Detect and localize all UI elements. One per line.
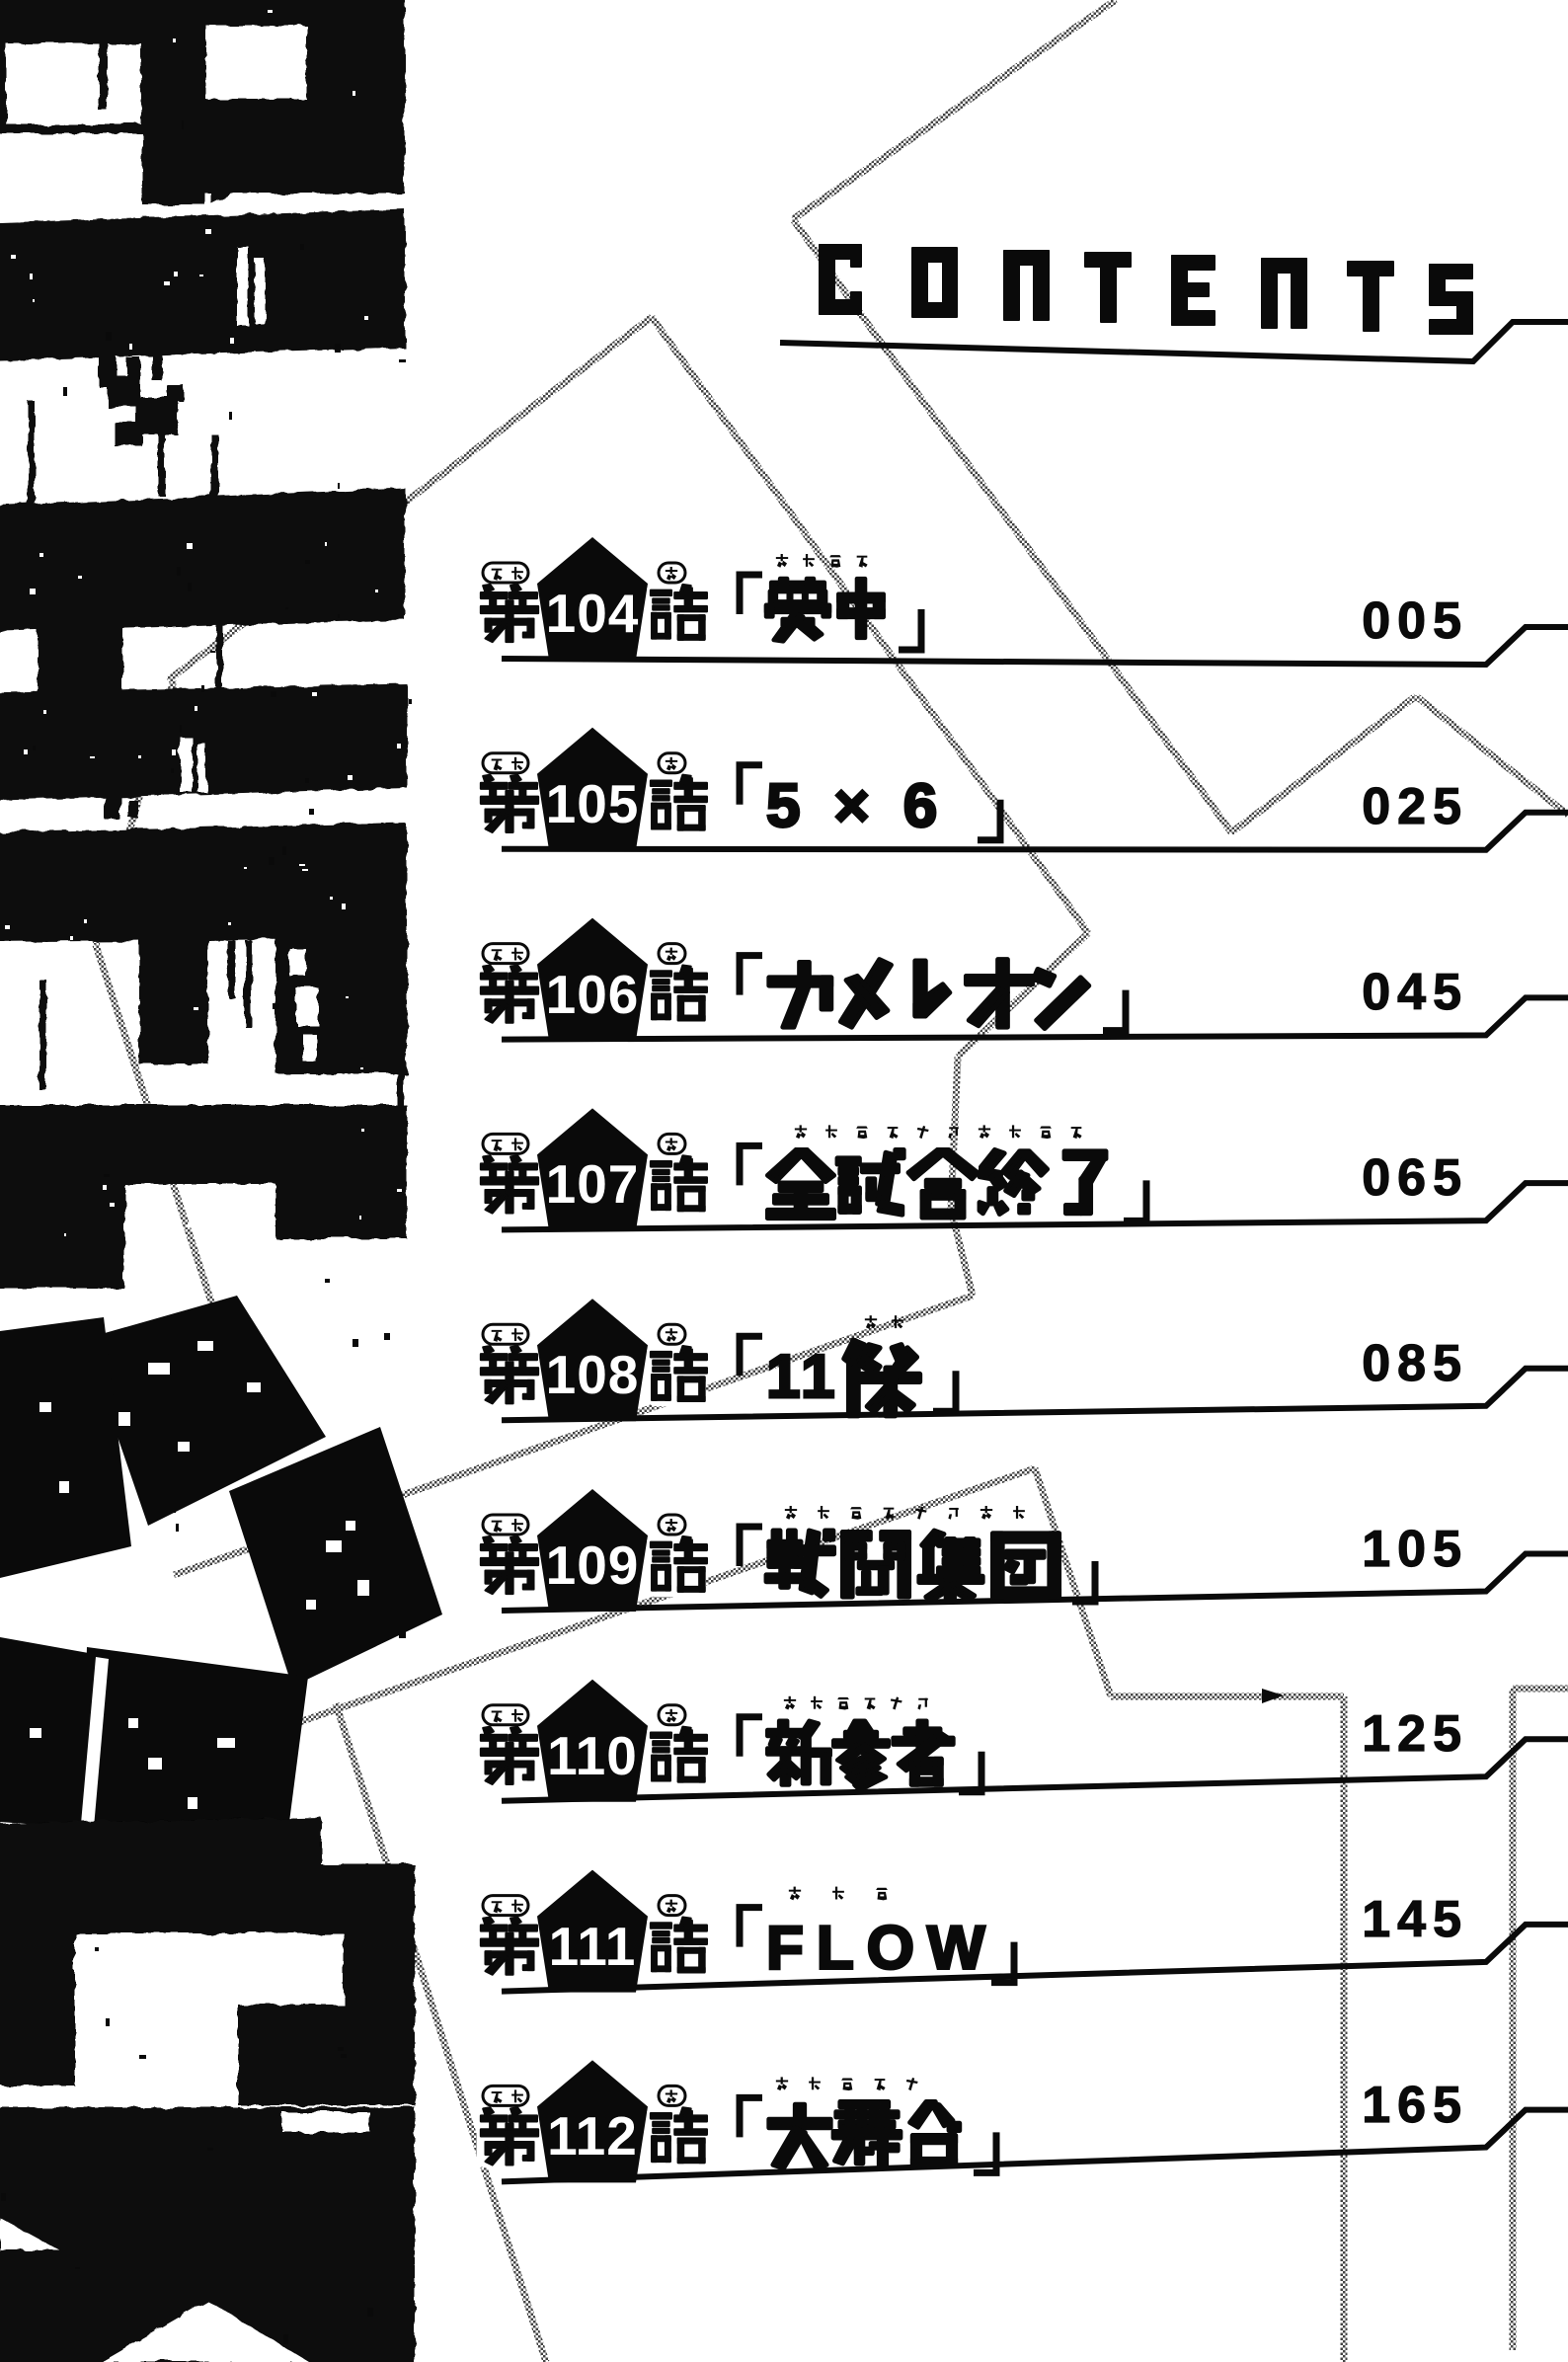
svg-text:005: 005 [1362, 592, 1468, 650]
svg-text:105: 105 [546, 773, 640, 834]
svg-text:109: 109 [546, 1535, 640, 1596]
svg-text:112: 112 [547, 2105, 638, 2166]
svg-text:110: 110 [547, 1725, 638, 1786]
svg-text:085: 085 [1362, 1335, 1468, 1392]
svg-text:105: 105 [1362, 1521, 1468, 1578]
svg-text:125: 125 [1362, 1705, 1468, 1763]
svg-text:FLOW: FLOW [766, 1915, 998, 1983]
svg-text:145: 145 [1362, 1891, 1468, 1948]
svg-text:065: 065 [1362, 1149, 1468, 1207]
svg-text:165: 165 [1362, 2077, 1468, 2134]
svg-text:104: 104 [546, 583, 640, 644]
svg-text:108: 108 [546, 1344, 640, 1405]
svg-text:025: 025 [1362, 778, 1468, 835]
svg-text:11: 11 [766, 1343, 839, 1411]
svg-text:5×6: 5×6 [766, 772, 971, 840]
svg-text:107: 107 [546, 1153, 640, 1215]
svg-text:111: 111 [549, 1916, 637, 1977]
svg-text:106: 106 [546, 964, 640, 1025]
svg-text:045: 045 [1362, 964, 1468, 1021]
